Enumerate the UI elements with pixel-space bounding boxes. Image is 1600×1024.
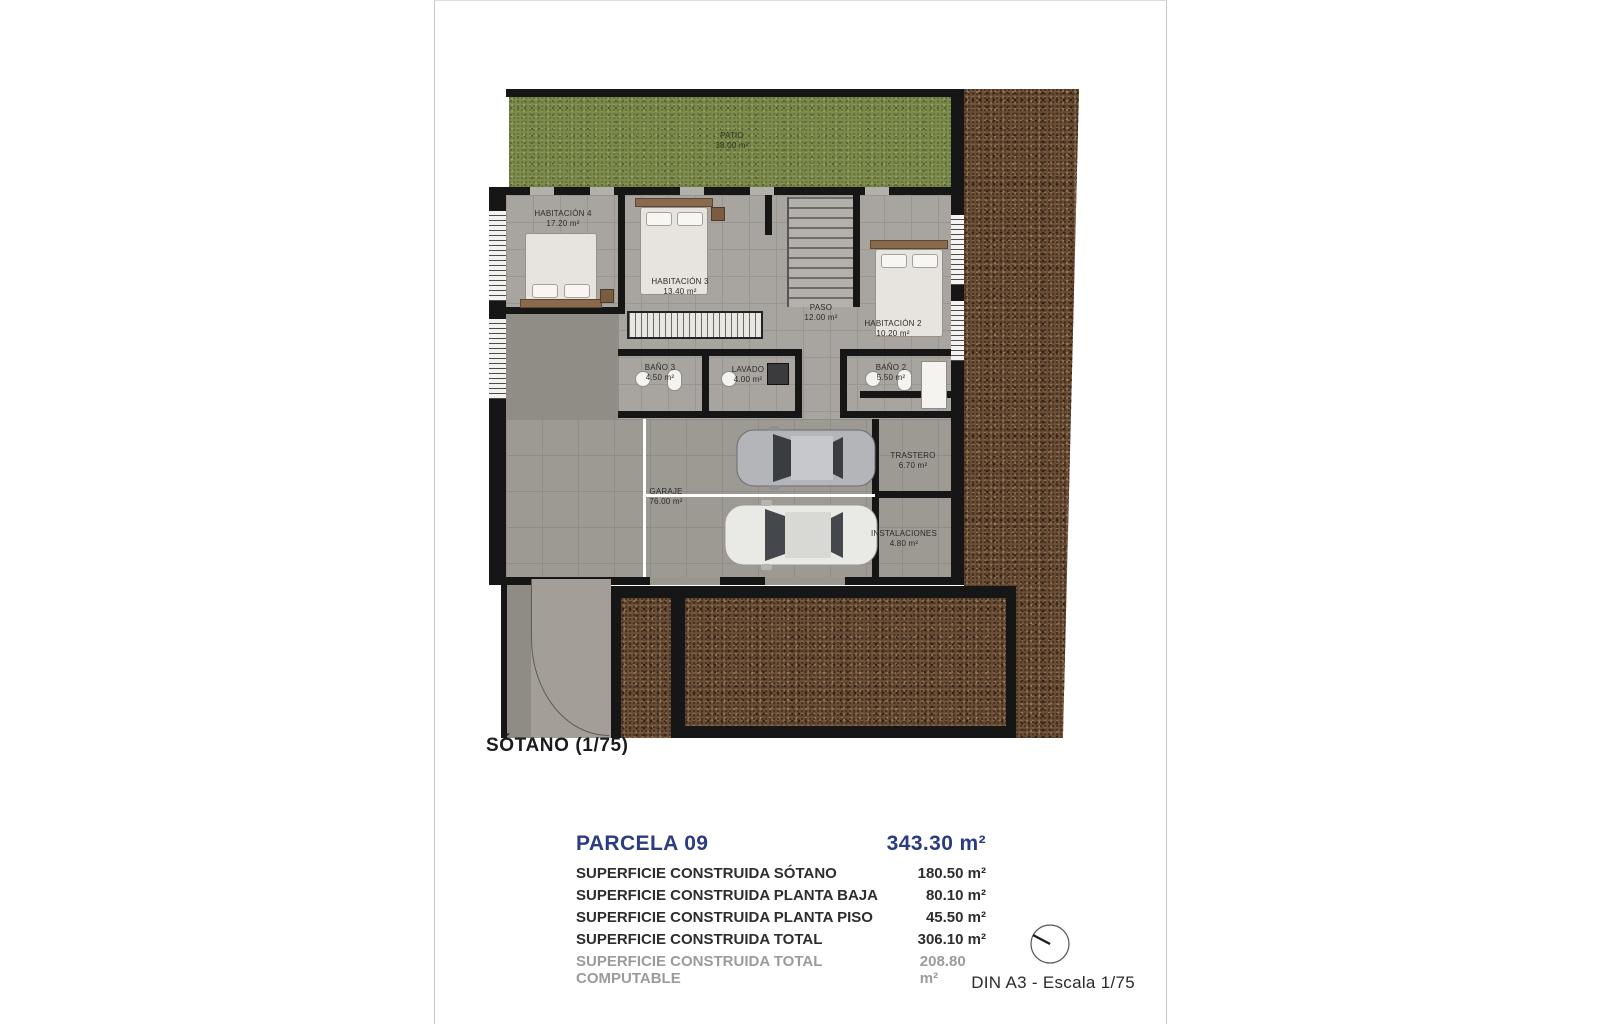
garage-door-gap xyxy=(765,577,845,585)
wall-bath-bottom-2 xyxy=(840,411,951,418)
north-wall xyxy=(506,187,959,195)
north-arrow-icon xyxy=(1023,917,1075,969)
summary-row-label: SUPERFICIE CONSTRUIDA SÓTANO xyxy=(576,865,837,882)
headboard xyxy=(635,198,713,207)
window-gap xyxy=(530,187,554,195)
room-name: HABITACIÓN 3 xyxy=(651,277,708,287)
parcel-area: 343.30 m² xyxy=(887,832,986,856)
wall-lavado-right xyxy=(795,356,802,416)
label-trastero: TRASTERO 6.70 m² xyxy=(883,451,943,470)
plan-sheet: PATIO 38.00 m² HABITACIÓN 4 17.20 m² HAB… xyxy=(434,0,1167,1024)
summary-row-label: SUPERFICIE CONSTRUIDA PLANTA BAJA xyxy=(576,887,878,904)
summary-row-label: SUPERFICIE CONSTRUIDA PLANTA PISO xyxy=(576,909,873,926)
room-area: 13.40 m² xyxy=(663,287,696,297)
wall-bath-top xyxy=(618,349,802,356)
label-paso: PASO 12.00 m² xyxy=(791,303,851,322)
bed-habitacion4 xyxy=(525,233,597,303)
room-name: INSTALACIONES xyxy=(871,529,937,539)
room-area: 4.80 m² xyxy=(890,539,919,549)
room-area: 5.50 m² xyxy=(877,373,906,383)
label-habitacion2: HABITACIÓN 2 10.20 m² xyxy=(843,319,943,338)
wall-stairs-right xyxy=(853,195,860,307)
lower-terrace-main xyxy=(685,598,1006,726)
window-gap xyxy=(750,187,774,195)
summary-header: PARCELA 09 343.30 m² xyxy=(576,832,986,856)
room-area: 76.00 m² xyxy=(649,497,682,507)
room-name: PASO xyxy=(810,303,832,313)
summary-row-value: 80.10 m² xyxy=(926,887,986,904)
room-name: TRASTERO xyxy=(890,451,935,461)
nightstand xyxy=(600,289,614,303)
room-name: GARAJE xyxy=(649,487,682,497)
room-area: 38.00 m² xyxy=(715,141,748,151)
label-habitacion4: HABITACIÓN 4 17.20 m² xyxy=(513,209,613,228)
summary-row-value: 45.50 m² xyxy=(926,909,986,926)
summary-row: SUPERFICIE CONSTRUIDA SÓTANO 180.50 m² xyxy=(576,865,986,882)
label-instalaciones: INSTALACIONES 4.80 m² xyxy=(859,529,949,548)
parcel-label: PARCELA 09 xyxy=(576,832,708,856)
sheet-scale-note: DIN A3 - Escala 1/75 xyxy=(855,973,1135,993)
shower xyxy=(921,361,947,409)
wall-bano3-lavado xyxy=(702,356,709,416)
garage-door-gap xyxy=(650,577,720,585)
room-name: HABITACIÓN 2 xyxy=(864,319,921,329)
wall-hab4-bottom xyxy=(489,307,625,314)
wall-bath-bottom xyxy=(618,411,802,418)
room-area: 10.20 m² xyxy=(876,329,909,339)
label-habitacion3: HABITACIÓN 3 13.40 m² xyxy=(630,277,730,296)
label-lavado: LAVADO 4.00 m² xyxy=(718,365,778,384)
room-area: 12.00 m² xyxy=(804,313,837,323)
wall-hab4-hab3 xyxy=(618,195,625,307)
summary-row-value: 306.10 m² xyxy=(918,931,986,948)
garage-side-slab xyxy=(491,314,619,419)
summary-row-label: SUPERFICIE CONSTRUIDA TOTAL xyxy=(576,931,822,948)
headboard xyxy=(870,240,948,249)
lightwell-window xyxy=(489,211,506,301)
summary-row-value: 180.50 m² xyxy=(918,865,986,882)
room-area: 6.70 m² xyxy=(899,461,928,471)
car-white xyxy=(723,499,879,571)
plan-title: SÓTANO (1/75) xyxy=(486,735,629,757)
label-patio: PATIO 38.00 m² xyxy=(685,131,779,150)
wall-trastero-bottom xyxy=(872,491,951,498)
room-name: BAÑO 3 xyxy=(645,363,676,373)
wall-bano2-left xyxy=(840,356,847,416)
headboard xyxy=(520,299,602,308)
lightwell-window xyxy=(951,215,964,285)
room-name: BAÑO 2 xyxy=(876,363,907,373)
summary-row: SUPERFICIE CONSTRUIDA PLANTA PISO 45.50 … xyxy=(576,909,986,926)
wall-bath-top-2 xyxy=(840,349,951,356)
car-silver xyxy=(735,425,877,491)
window-gap xyxy=(680,187,704,195)
summary-row: SUPERFICIE CONSTRUIDA PLANTA BAJA 80.10 … xyxy=(576,887,986,904)
lightwell-window xyxy=(951,301,964,361)
window-gap xyxy=(590,187,614,195)
room-area: 17.20 m² xyxy=(546,219,579,229)
nightstand xyxy=(711,207,725,221)
label-bano2: BAÑO 2 5.50 m² xyxy=(861,363,921,382)
label-garaje: GARAJE 76.00 m² xyxy=(635,487,697,506)
lower-terrace-strip xyxy=(621,598,671,738)
room-name: PATIO xyxy=(720,131,744,141)
patio-top-wall xyxy=(506,89,959,97)
lightwell-window xyxy=(489,319,506,399)
label-bano3: BAÑO 3 4.50 m² xyxy=(630,363,690,382)
window-gap xyxy=(865,187,889,195)
room-area: 4.00 m² xyxy=(734,375,763,385)
staircase xyxy=(787,197,853,307)
summary-row: SUPERFICIE CONSTRUIDA TOTAL 306.10 m² xyxy=(576,931,986,948)
wall-hab3-stub xyxy=(765,195,772,235)
room-area: 4.50 m² xyxy=(646,373,675,383)
room-name: HABITACIÓN 4 xyxy=(534,209,591,219)
room-name: LAVADO xyxy=(732,365,764,375)
wardrobe xyxy=(627,311,763,339)
driveway-west-wall xyxy=(501,585,507,738)
